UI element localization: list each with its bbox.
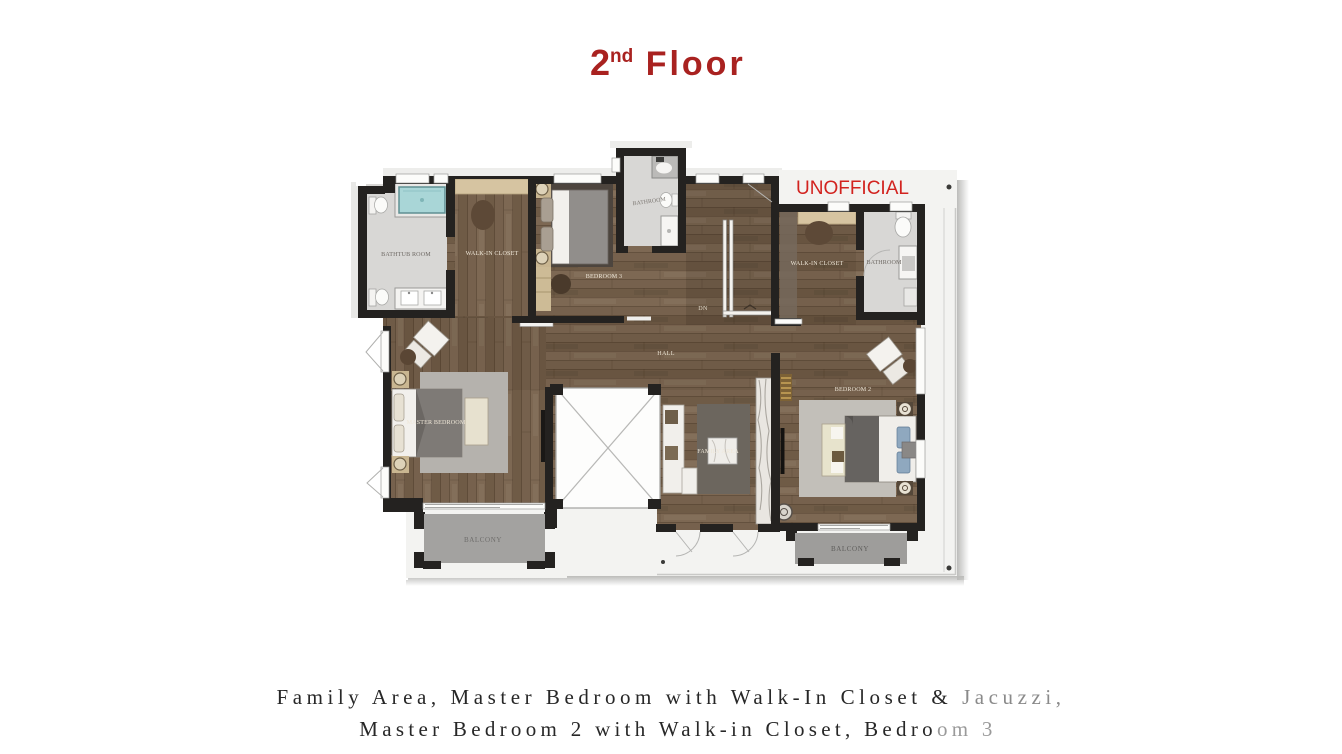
svg-text:FAMILY AREA: FAMILY AREA bbox=[697, 449, 739, 455]
svg-text:BALCONY: BALCONY bbox=[831, 545, 869, 553]
svg-text:Family Area, Master Bedroom wi: Family Area, Master Bedroom with Walk-In… bbox=[276, 685, 1065, 709]
svg-text:BEDROOM 3: BEDROOM 3 bbox=[586, 274, 622, 280]
svg-text:WALK-IN CLOSET: WALK-IN CLOSET bbox=[791, 261, 844, 267]
svg-text:BATHROOM: BATHROOM bbox=[867, 260, 902, 266]
svg-text:BEDROOM 2: BEDROOM 2 bbox=[835, 387, 871, 393]
svg-text:BATHTUB ROOM: BATHTUB ROOM bbox=[381, 252, 431, 258]
svg-text:BALCONY: BALCONY bbox=[464, 536, 502, 544]
svg-text:MASTER BEDROOM: MASTER BEDROOM bbox=[407, 420, 466, 426]
svg-text:UNOFFICIAL: UNOFFICIAL bbox=[796, 178, 909, 199]
svg-text:DN: DN bbox=[698, 306, 708, 312]
svg-text:Master Bedroom 2 with Walk-in: Master Bedroom 2 with Walk-in Closet, Be… bbox=[359, 717, 996, 741]
svg-text:HALL: HALL bbox=[657, 351, 674, 357]
svg-text:WALK-IN CLOSET: WALK-IN CLOSET bbox=[466, 251, 519, 257]
